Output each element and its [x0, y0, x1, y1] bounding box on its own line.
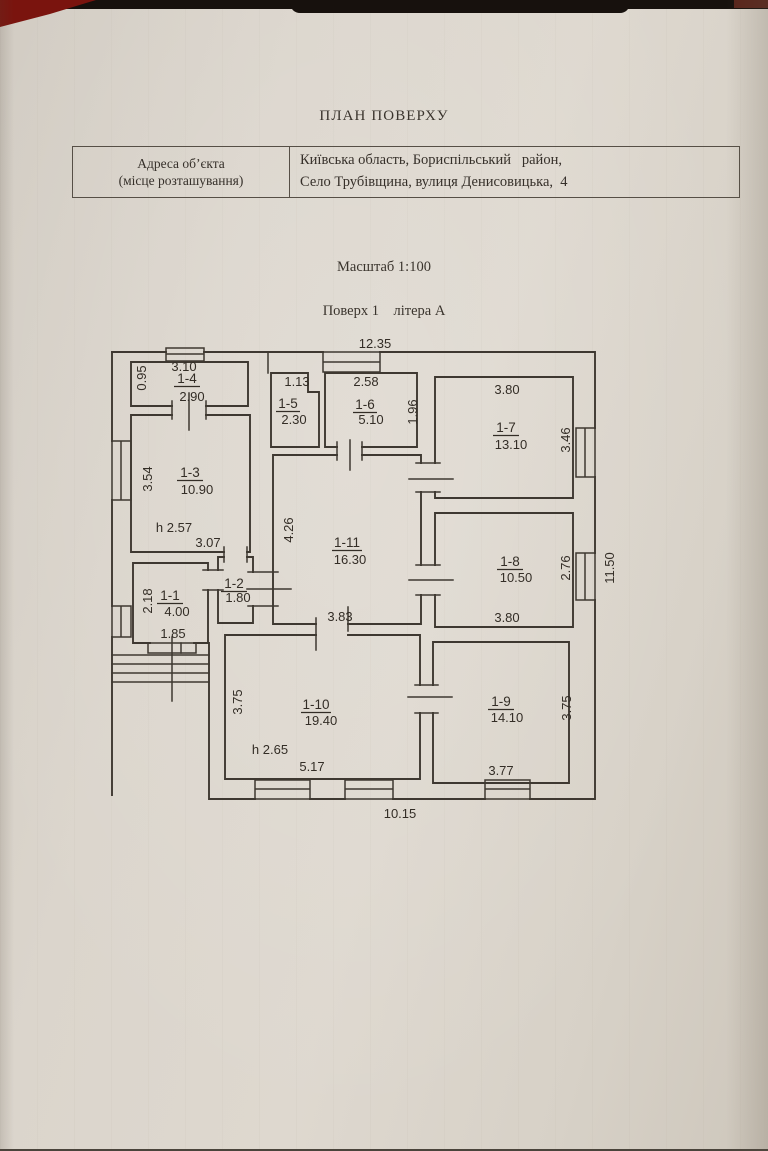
- dim-1-8-bottom: 3.80: [494, 610, 519, 625]
- room-1-1-id: 1-1: [160, 588, 180, 603]
- scanned-document-page: ПЛАН ПОВЕРХУ Адреса об’єкта (місце розта…: [0, 0, 768, 1151]
- room-1-11-area: 16.30: [334, 552, 367, 567]
- window-bottom-1-10b: [345, 780, 393, 799]
- room-1-9-id: 1-9: [491, 694, 511, 709]
- dim-1-6-top: 2.58: [353, 374, 378, 389]
- room-1-7-area: 13.10: [495, 437, 528, 452]
- room-1-2-area: 1.80: [225, 590, 250, 605]
- room-1-4-id: 1-4: [177, 371, 197, 386]
- dim-1-8-right: 2.76: [558, 555, 573, 580]
- dim-1-6-right: 1.96: [405, 399, 420, 424]
- room-1-11-id: 1-11: [334, 535, 360, 550]
- window-top-1-6: [323, 352, 380, 372]
- room-1-8-id: 1-8: [500, 554, 520, 569]
- room-1-3-area: 10.90: [181, 482, 214, 497]
- window-right-1-8: [576, 553, 595, 600]
- room-1-6-area: 5.10: [358, 412, 383, 427]
- window-left-1-1: [112, 606, 131, 637]
- room-1-9-area: 14.10: [491, 710, 524, 725]
- dim-1-10-bottom: 5.17: [299, 759, 324, 774]
- dim-1-9-right: 3.75: [559, 695, 574, 720]
- dim-1-3-left: 3.54: [140, 466, 155, 491]
- dim-1-3-bottom: 3.07: [195, 535, 220, 550]
- porch-steps: [112, 643, 209, 682]
- room-1-6-id: 1-6: [355, 397, 375, 412]
- room-1-4-area: 2.90: [179, 389, 204, 404]
- dim-1-11-left: 4.26: [281, 517, 296, 542]
- dim-overall-right: 11.50: [602, 552, 617, 584]
- dim-overall-bottom: 10.15: [384, 806, 417, 821]
- room-1-2-id: 1-2: [224, 576, 244, 591]
- room-1-8-area: 10.50: [500, 570, 533, 585]
- dim-1-7-top: 3.80: [494, 382, 519, 397]
- dim-1-5-top: 1.13: [284, 374, 309, 389]
- window-right-1-7: [576, 428, 595, 477]
- dim-1-1-left: 2.18: [140, 588, 155, 613]
- dim-1-9-bottom: 3.77: [488, 763, 513, 778]
- room-1-10-id: 1-10: [302, 697, 329, 712]
- room-1-3-id: 1-3: [180, 465, 200, 480]
- dim-overall-top: 12.35: [359, 336, 392, 351]
- window-left-1-3: [112, 441, 131, 500]
- dim-1-1-bottom: 1.85: [160, 626, 185, 641]
- room-1-7-id: 1-7: [496, 420, 516, 435]
- dim-1-11-bottom: 3.83: [327, 609, 352, 624]
- dim-1-10-left: 3.75: [230, 689, 245, 714]
- room-1-3-height: h 2.57: [156, 520, 192, 535]
- room-1-5-id: 1-5: [278, 396, 298, 411]
- dim-1-4-left: 0.95: [134, 365, 149, 390]
- room-1-10-height: h 2.65: [252, 742, 288, 757]
- floor-plan-drawing: 12.35 11.50 10.15 3.10 0.95 1-4 2.90 1.1…: [0, 0, 768, 1151]
- dim-1-7-right: 3.46: [558, 427, 573, 452]
- door-marks: [172, 393, 453, 713]
- room-1-10-area: 19.40: [305, 713, 338, 728]
- room-1-1-area: 4.00: [164, 604, 189, 619]
- room-1-5-area: 2.30: [281, 412, 306, 427]
- window-bottom-1-10a: [255, 780, 310, 799]
